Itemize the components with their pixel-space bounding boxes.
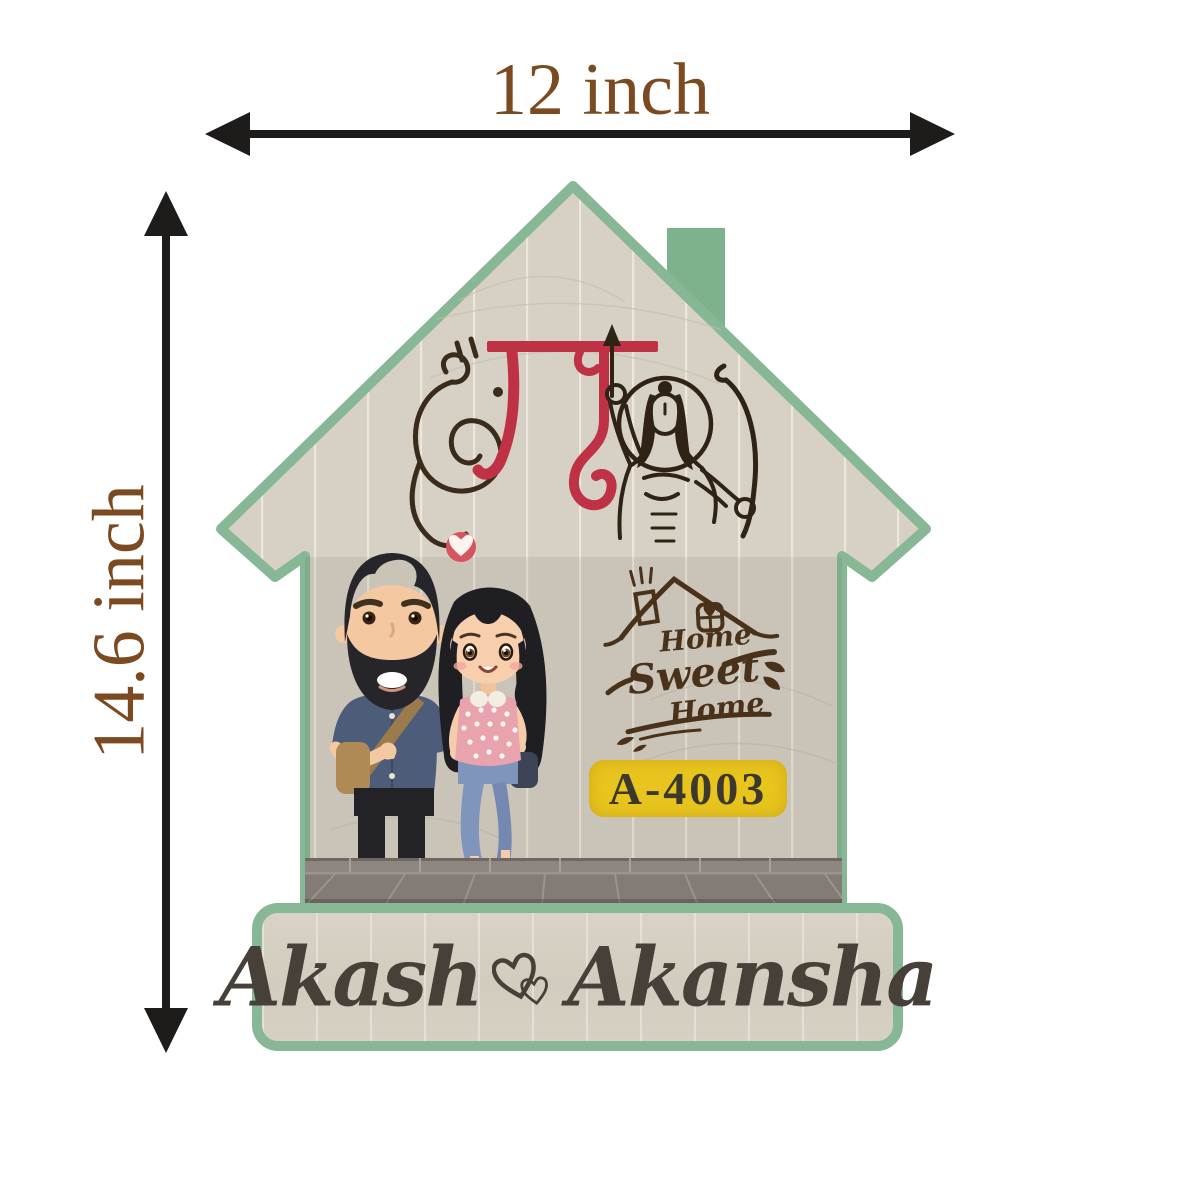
double-heart-icon xyxy=(492,951,558,1015)
heart-icon xyxy=(446,532,476,562)
name-second: Akansha xyxy=(568,929,937,1025)
crossbody-bag xyxy=(336,742,370,794)
flat-number-text: A-4003 xyxy=(609,762,768,815)
floor-tiles xyxy=(305,858,842,905)
product-image: 12 inch 14.6 inch xyxy=(0,0,1200,1200)
flat-number-badge: A-4003 xyxy=(589,760,787,817)
name-first: Akash xyxy=(219,929,482,1025)
height-dimension-label: 14.6 inch xyxy=(78,484,163,759)
names-plate: Akash Akansha xyxy=(252,903,903,1051)
home-sweet-home-logo: Home Sweet Home xyxy=(591,551,806,756)
width-dimension-label: 12 inch xyxy=(490,48,710,133)
